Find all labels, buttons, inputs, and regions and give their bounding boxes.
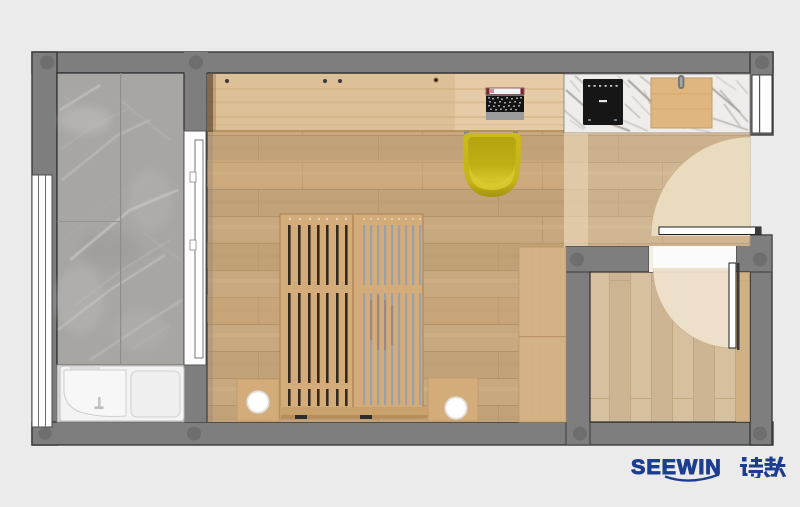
svg-text:SEEWIN: SEEWIN bbox=[631, 455, 722, 479]
